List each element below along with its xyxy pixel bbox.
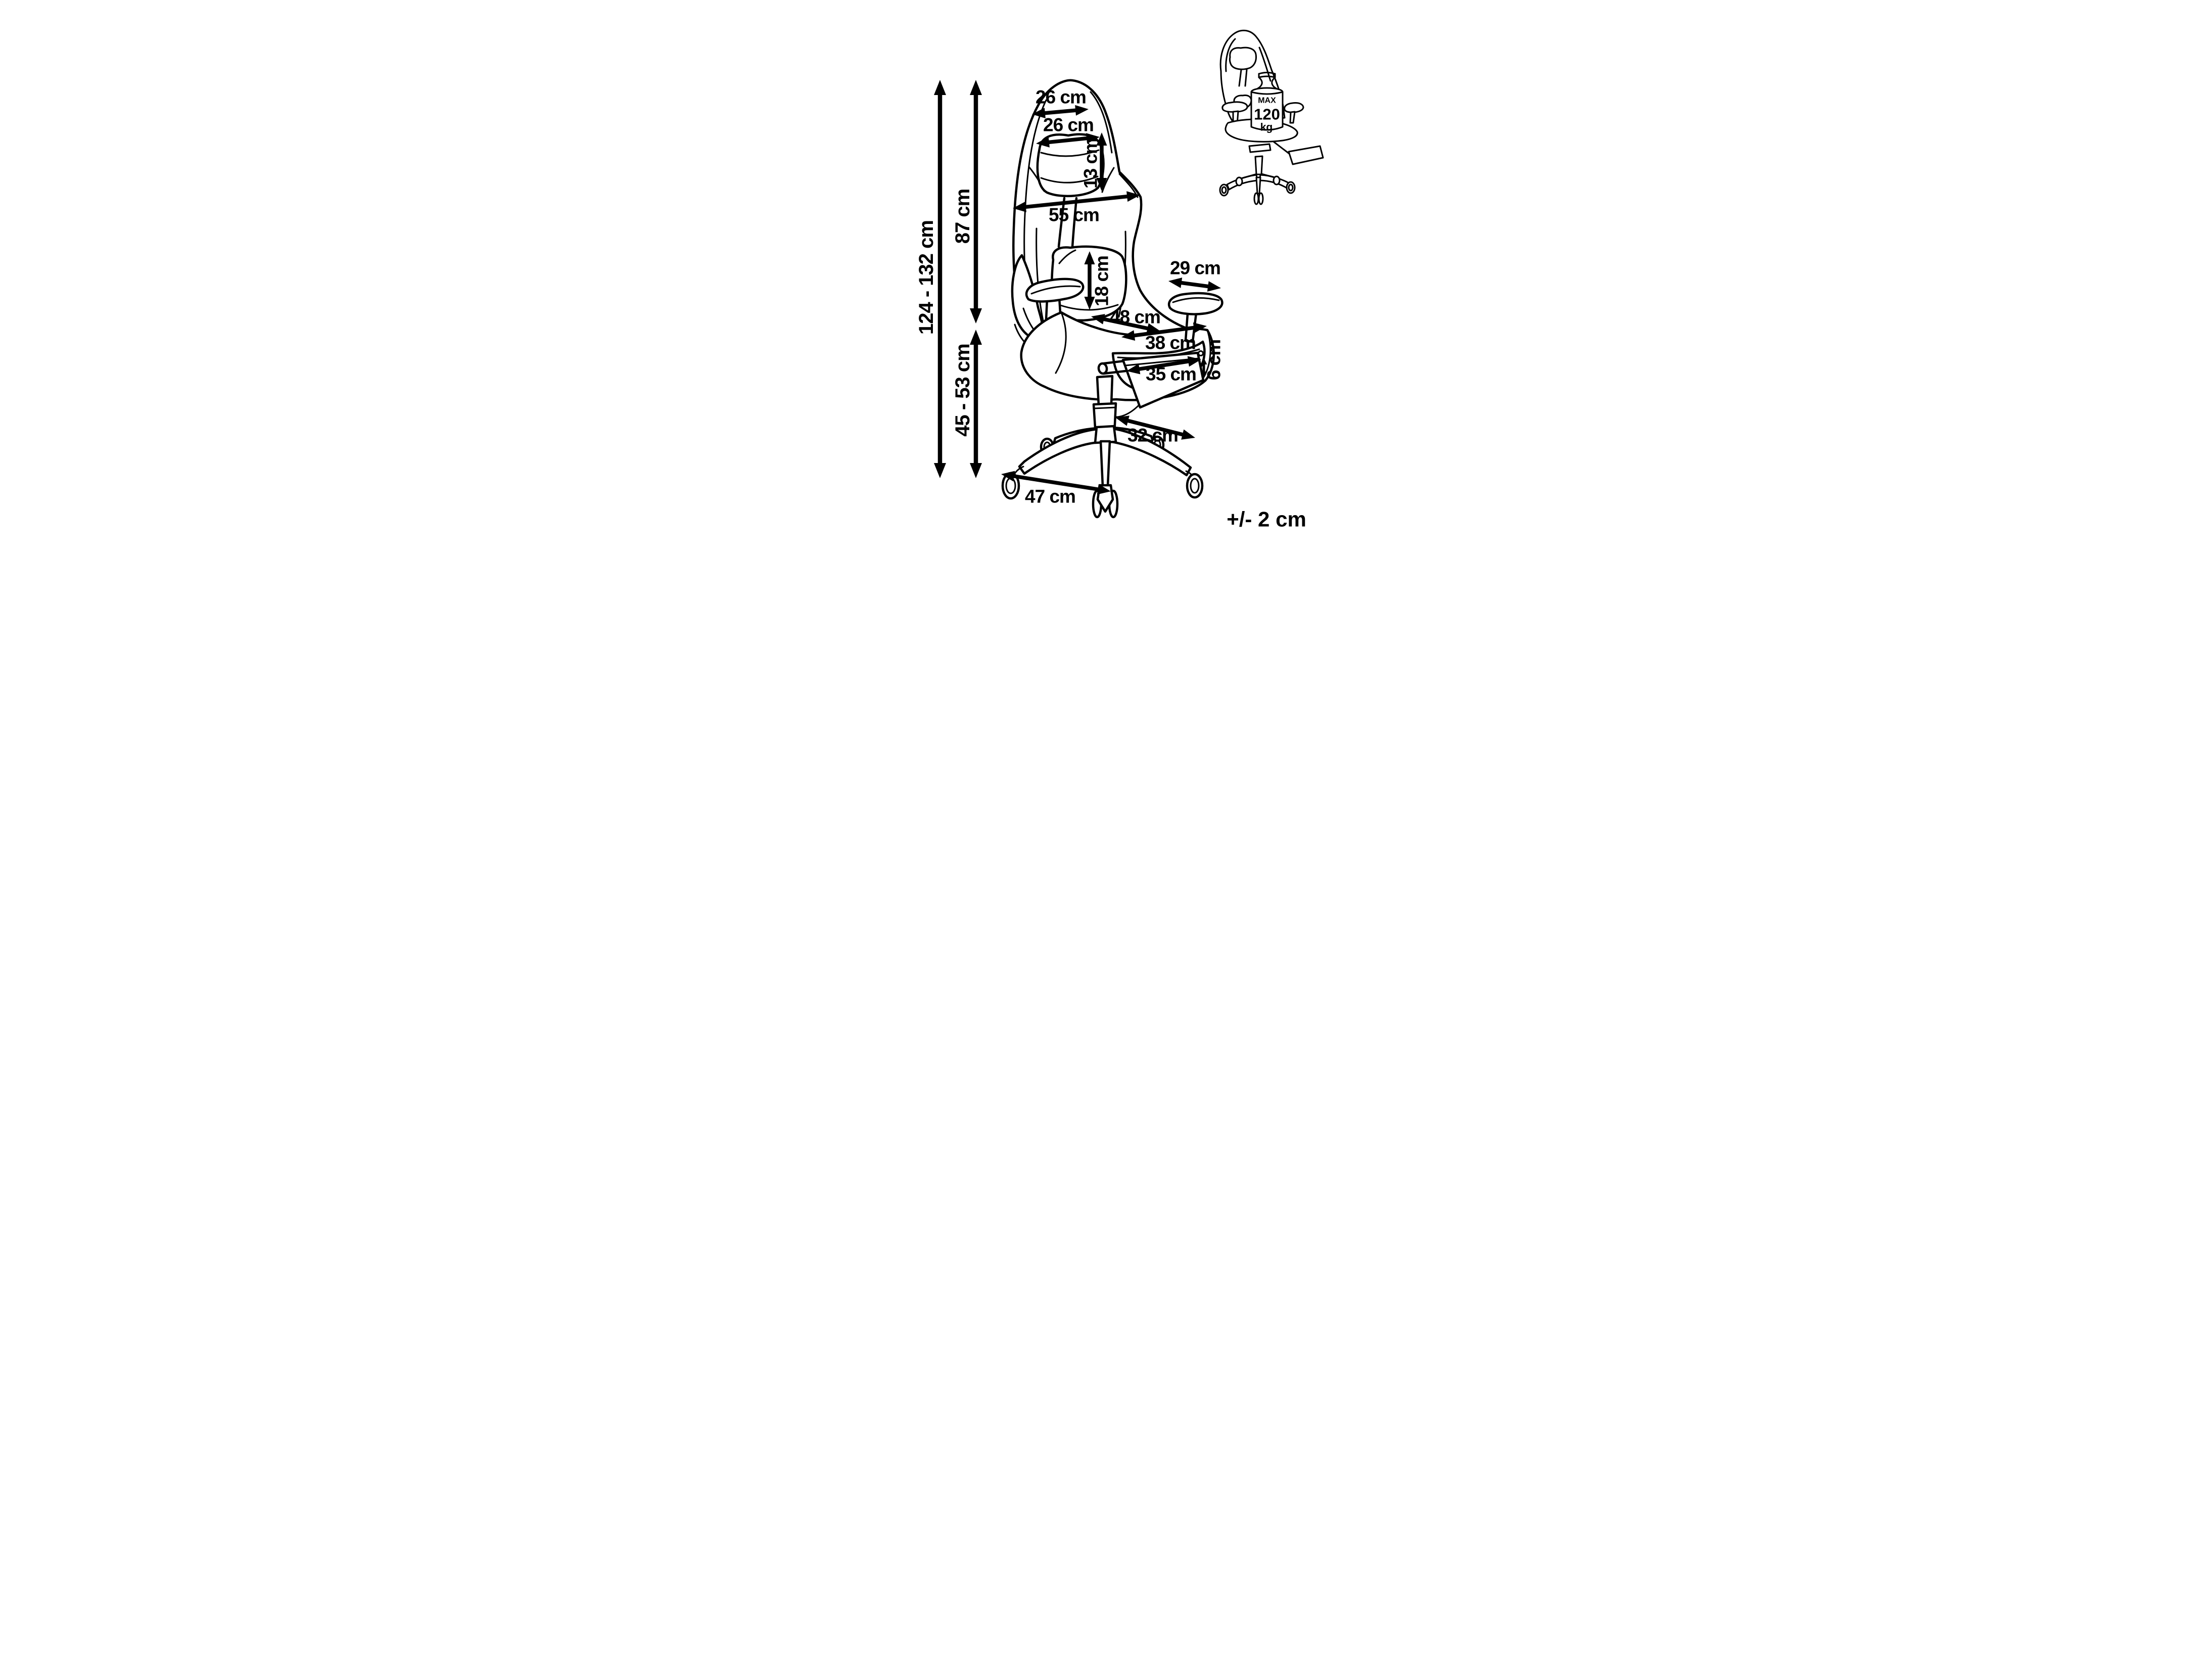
gas-lift-collar [1094,407,1116,408]
inset-armrest-pad-left [1222,102,1247,112]
inset-gas-lift [1255,156,1262,174]
dimension-arrowhead-armrest-length-start [1168,278,1182,288]
inset-base-leg-front [1256,177,1260,194]
inset-armrest-pad-right [1285,103,1303,112]
inset-caster-right [1287,182,1295,193]
armrest-pad-right [1169,293,1222,314]
tolerance-note: +/- 2 cm [1227,508,1306,531]
dimension-label-headrest-height: 13 cm [1080,138,1101,189]
dimension-arrowhead-base-leg-length-end [1181,429,1195,439]
dimension-arrowhead-backrest-height-end [970,308,982,324]
gaming-chair-dimension-diagram: MAX 120 kg 124 - 132 cm87 cm45 - 53 cm26… [737,0,1475,553]
inset-headrest-pillow [1230,48,1256,69]
dimension-overall-height: 124 - 132 cm [915,80,946,478]
dimension-label-footrest-length: 35 cm [1146,364,1196,385]
dimension-label-overall-height: 124 - 132 cm [915,220,937,335]
max-load-line1: MAX [1258,97,1276,105]
dimension-backrest-height: 87 cm [952,80,982,324]
gas-lift-upper-tube [1097,376,1112,405]
inset-armrest-post-right [1290,112,1295,123]
dimension-arrow-shaft-armrest-length [1179,283,1211,287]
max-load-line3: kg [1260,122,1273,133]
dimension-label-base-leg-length: 32 cm [1127,425,1178,446]
dimension-base-leg-length: 32 cm [1115,416,1195,445]
inset-caster-left [1220,185,1228,196]
dimension-label-footrest-thickness: 6 cm [1204,340,1225,380]
inset-footrest-support [1274,142,1289,154]
inset-caster-front-b [1259,193,1263,204]
inset-caster-back-right [1274,176,1280,185]
dimension-label-seat-height: 45 - 53 cm [952,344,974,436]
dimension-arrowhead-overall-height-start [934,80,946,95]
max-load-inset-illustration: MAX 120 kg [1220,30,1323,204]
dimension-label-lumbar-height: 18 cm [1092,256,1112,306]
diagram-page: MAX 120 kg 124 - 132 cm87 cm45 - 53 cm26… [737,0,1475,553]
dimension-arrowhead-seat-height-start [970,330,982,345]
dimension-label-seat-width: 48 cm [1110,307,1160,328]
dimension-headrest-height: 13 cm [1080,132,1107,191]
dimension-lumbar-height: 18 cm [1085,251,1112,310]
dimension-label-backrest-top-width: 26 cm [1036,87,1086,108]
dimension-label-armrest-length: 29 cm [1170,258,1220,279]
dimension-arrowhead-armrest-length-end [1207,281,1221,292]
inset-footrest-tray [1289,146,1323,164]
base-leg-front [1101,441,1110,486]
caster-right-wheel [1187,474,1202,497]
inset-caster-front-a [1254,193,1258,204]
main-chair-illustration [1003,80,1222,517]
dimension-armrest-length: 29 cm [1168,258,1221,292]
dimension-label-headrest-width: 26 cm [1043,115,1094,135]
dimension-label-backrest-width: 55 cm [1049,205,1099,225]
dimension-arrowhead-overall-height-end [934,463,946,478]
dimension-arrowhead-backrest-height-start [970,80,982,95]
dimension-label-seat-depth: 38 cm [1145,333,1196,353]
dimension-label-backrest-height: 87 cm [952,189,974,244]
dimension-seat-height: 45 - 53 cm [952,330,982,478]
max-load-line2: 120 [1254,106,1280,123]
dimension-footrest-thickness: 6 cm [1201,340,1225,380]
inset-seat-plate [1249,144,1270,152]
inset-caster-back-left [1236,177,1242,186]
dimension-label-base-width: 47 cm [1025,486,1075,507]
footrest-rod-cap [1098,363,1108,374]
dimension-arrowhead-seat-height-end [970,463,982,478]
